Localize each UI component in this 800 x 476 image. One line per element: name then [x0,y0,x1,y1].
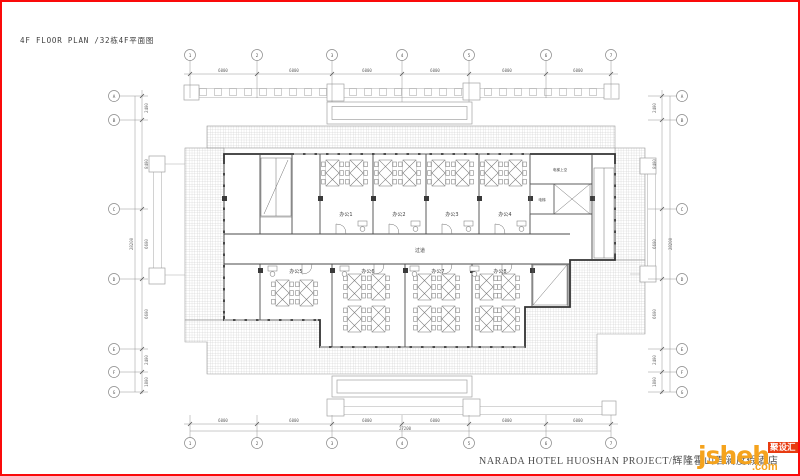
dormer-bottom [332,376,472,397]
dimension-label: 6000 [502,418,512,423]
grid-bubble: 2 [252,438,263,449]
dimension-total-label: 27200 [399,426,412,431]
dimension-label: 6000 [573,68,583,73]
grid-bubble: 6 [541,438,552,449]
svg-text:2: 2 [256,441,259,447]
grid-bubble: 5 [464,50,475,61]
svg-text:G: G [681,390,684,396]
svg-text:4: 4 [401,441,404,447]
dimension-label: 6000 [573,418,583,423]
grid-bubble: 1 [185,438,196,449]
room-label-office3: 办公3 [445,211,458,218]
watermark: jsheh .com 聚设汇 [696,439,800,476]
dimension-total-label: 28200 [668,237,673,250]
dimension-label: 6600 [144,309,149,319]
grid-bubble: 7 [606,438,617,449]
grid-bubble: G [109,387,120,398]
svg-text:E: E [681,347,684,353]
grid-bubble: 6 [541,50,552,61]
svg-text:B: B [681,118,684,124]
dimension-label: 6000 [362,68,372,73]
svg-text:5: 5 [468,441,471,447]
grid-bubble: 7 [606,50,617,61]
room-label-office5: 办公5 [289,268,302,275]
dimension-label: 6600 [144,239,149,249]
floor-plan-canvas: 办公1 办公2 办公3 办公4 办公5 办公6 办公7 办公8 过道 电梯上空 … [2,2,800,476]
svg-text:7: 7 [610,441,613,447]
svg-text:G: G [113,390,116,396]
dormer-top [327,102,472,124]
grid-bubble: B [677,115,688,126]
grid-bubble: F [109,367,120,378]
grid-bubble: 4 [397,50,408,61]
dimension-label: 6000 [289,418,299,423]
grid-bubble: B [109,115,120,126]
room-label-elevator-upper: 电梯上空 [553,167,568,172]
svg-text:D: D [681,277,684,283]
watermark-tld: .com [752,461,778,473]
dimension-label: 6600 [652,309,657,319]
room-label-office8: 办公8 [493,268,506,275]
grid-bubble: D [109,274,120,285]
svg-text:1: 1 [189,441,192,447]
grid-bubble: 4 [397,438,408,449]
svg-text:C: C [681,207,684,213]
svg-text:A: A [681,94,684,100]
svg-text:3: 3 [331,53,334,59]
grid-bubble: E [109,344,120,355]
room-label-office2: 办公2 [392,211,405,218]
grid-bubble: D [677,274,688,285]
grid-bubble: 1 [185,50,196,61]
svg-text:F: F [113,370,116,376]
room-label-office1: 办公1 [339,211,352,218]
svg-text:A: A [113,94,116,100]
svg-text:D: D [113,277,116,283]
grid-bubble: 2 [252,50,263,61]
dimension-label: 2400 [144,355,149,365]
grid-bubble: A [677,91,688,102]
watermark-badge: 聚设汇 [768,442,798,453]
svg-text:7: 7 [610,53,613,59]
grid-bubble: C [109,204,120,215]
svg-text:2: 2 [256,53,259,59]
dimension-label: 8400 [652,159,657,169]
svg-text:6: 6 [545,441,548,447]
dimension-label: 1800 [652,377,657,387]
svg-text:B: B [113,118,116,124]
svg-text:E: E [113,347,116,353]
dimension-label: 2400 [652,355,657,365]
grid-bubble: 5 [464,438,475,449]
grid-bubble: A [109,91,120,102]
dimension-label: 6600 [652,239,657,249]
svg-text:5: 5 [468,53,471,59]
grid-bubble: G [677,387,688,398]
dimension-total-label: 28200 [129,237,134,250]
svg-text:6: 6 [545,53,548,59]
dimension-label: 6000 [218,418,228,423]
room-label-corridor: 过道 [415,247,425,254]
dimension-label: 6000 [362,418,372,423]
dimension-label: 6000 [430,418,440,423]
room-label-office6: 办公6 [361,268,374,275]
room-label-office7: 办公7 [431,268,444,275]
drawing-sheet: 4F FLOOR PLAN /32栋4F平面图 [0,0,800,476]
svg-text:1: 1 [189,53,192,59]
dimension-label: 6000 [218,68,228,73]
svg-text:C: C [113,207,116,213]
dimension-label: 6000 [502,68,512,73]
svg-text:3: 3 [331,441,334,447]
grid-bubble: E [677,344,688,355]
room-label-elevator: 电梯 [538,197,546,202]
grid-bubble: 3 [327,438,338,449]
dimension-label: 8400 [144,159,149,169]
svg-text:4: 4 [401,53,404,59]
grid-bubble: 3 [327,50,338,61]
dimension-label: 6000 [430,68,440,73]
dimension-label: 6000 [289,68,299,73]
svg-text:F: F [681,370,684,376]
grid-bubble: F [677,367,688,378]
dimension-label: 2400 [144,103,149,113]
dimension-label: 2400 [652,103,657,113]
dimension-label: 1800 [144,377,149,387]
grid-bubble: C [677,204,688,215]
room-label-office4: 办公4 [498,211,511,218]
